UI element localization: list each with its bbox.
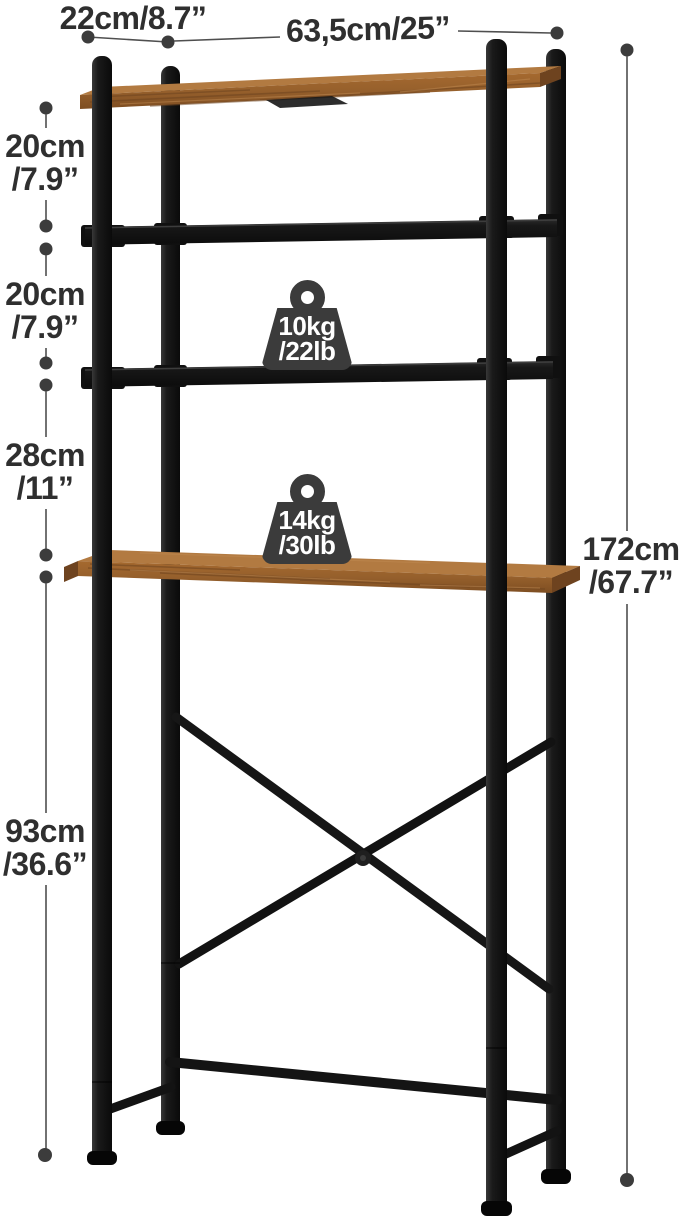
load-capacity-badge-upper: 10kg /22lb	[262, 280, 352, 370]
dimension-label-top-width: 63,5cm/25”	[286, 11, 451, 48]
dimension-label-total-height: 172cm /67.7”	[582, 533, 679, 599]
dimension-label-shelf-gap-2: 20cm /7.9”	[5, 278, 85, 344]
dimension-label-shelf-gap-1: 20cm /7.9”	[5, 130, 85, 196]
dimension-inch: /67.7”	[582, 566, 679, 599]
load-lb: /30lb	[279, 533, 336, 558]
load-lb: /22lb	[279, 339, 336, 364]
dimension-cm: 28cm	[5, 439, 85, 472]
front-legs	[87, 39, 512, 1216]
dimension-cm: 172cm	[582, 533, 679, 566]
dimension-label-shelf-gap-3: 28cm /11”	[5, 439, 85, 505]
load-capacity-badge-lower: 14kg /30lb	[262, 474, 352, 564]
dimension-cm: 20cm	[5, 278, 85, 311]
dimension-inch: /11”	[5, 472, 85, 505]
dimension-inch: /7.9”	[5, 163, 85, 196]
product-dimension-diagram: 22cm/8.7” 63,5cm/25” 20cm /7.9” 20cm /7.…	[0, 0, 679, 1219]
dimension-lines	[38, 27, 634, 1188]
product-illustration	[0, 0, 679, 1219]
dimension-inch: /7.9”	[5, 311, 85, 344]
dimension-inch: /36.6”	[3, 848, 87, 881]
dimension-cm: 93cm	[3, 815, 87, 848]
dimension-label-clearance: 93cm /36.6”	[3, 815, 87, 881]
dimension-cm: 20cm	[5, 130, 85, 163]
dimension-label-top-depth: 22cm/8.7”	[60, 2, 207, 35]
